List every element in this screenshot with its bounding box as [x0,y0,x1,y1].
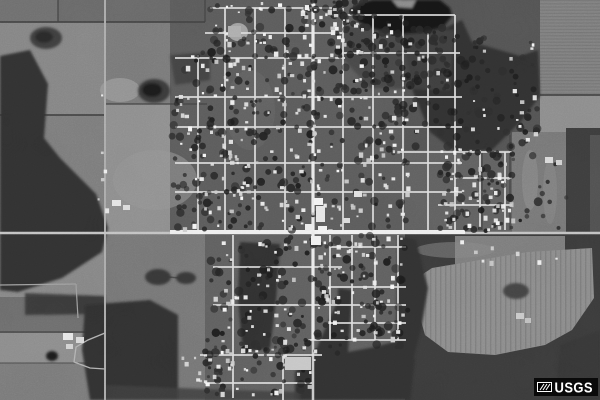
photo-grain-overlay [0,0,600,400]
aerial-photo-canvas[interactable] [0,0,600,400]
aerial-photo-viewport: USGS [0,0,600,400]
usgs-watermark: USGS [534,378,598,396]
usgs-wordmark: USGS [555,380,593,394]
usgs-flag-icon [537,382,552,392]
